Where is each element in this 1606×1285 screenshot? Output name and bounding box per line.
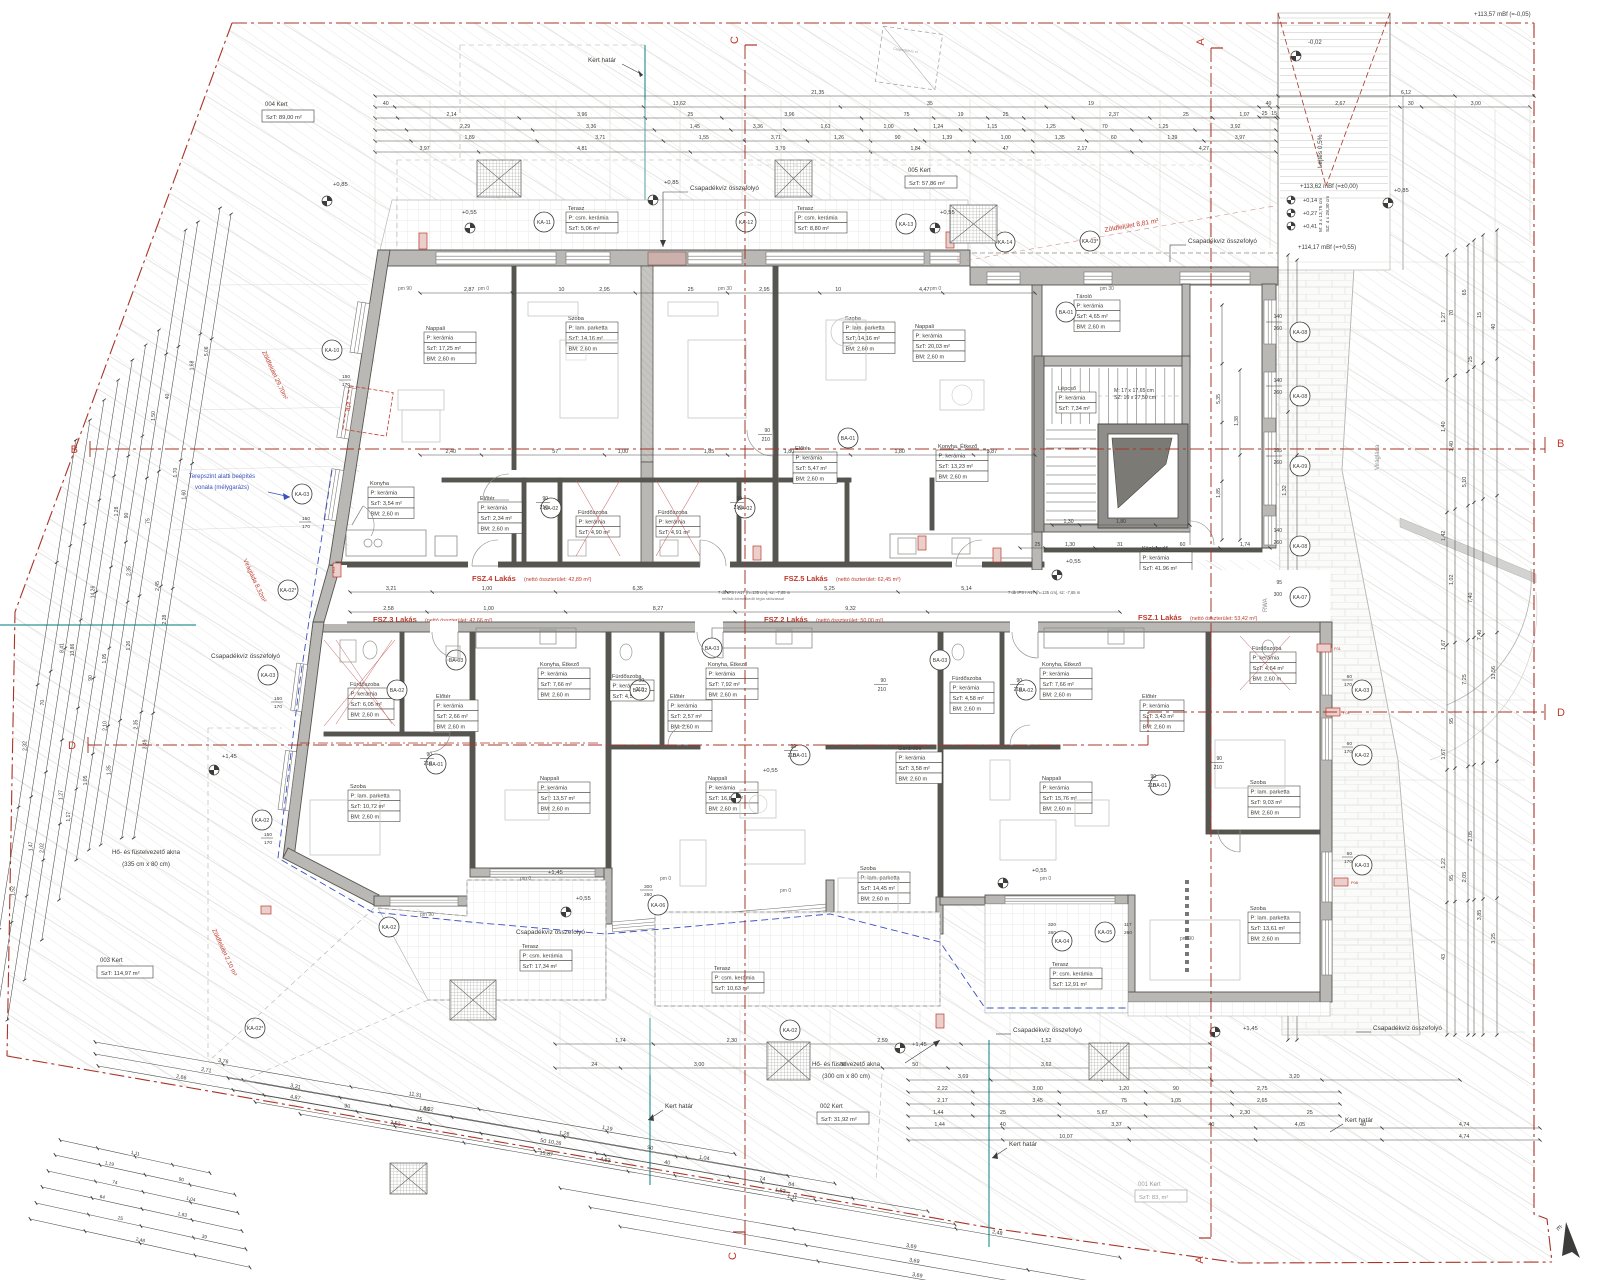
svg-text:4,81: 4,81 (577, 146, 587, 152)
svg-text:P: csm. kerámia: P: csm. kerámia (1053, 972, 1094, 978)
svg-text:SzT: 3,43 m²: SzT: 3,43 m² (1143, 714, 1175, 720)
svg-text:SzT: 5,47 m²: SzT: 5,47 m² (796, 466, 828, 472)
svg-text:1,00: 1,00 (1001, 135, 1011, 141)
svg-text:21,35: 21,35 (811, 90, 824, 96)
svg-text:Kert határ: Kert határ (1009, 1141, 1038, 1148)
svg-text:320: 320 (1048, 922, 1056, 928)
svg-text:1,25: 1,25 (1046, 124, 1056, 130)
svg-text:BM: 2,60 m: BM: 2,60 m (541, 807, 570, 813)
svg-text:2,02: 2,02 (39, 843, 45, 853)
svg-text:Fürdőszoba: Fürdőszoba (952, 676, 982, 682)
svg-text:43: 43 (1441, 954, 1447, 960)
svg-text:75: 75 (904, 112, 910, 118)
svg-text:50: 50 (540, 1138, 547, 1145)
svg-text:1,44: 1,44 (934, 1122, 945, 1128)
svg-text:90: 90 (1016, 678, 1022, 684)
svg-text:Terasz: Terasz (568, 206, 585, 212)
svg-text:SzT: 2,34 m²: SzT: 2,34 m² (481, 516, 513, 522)
svg-text:4,47: 4,47 (919, 287, 930, 293)
svg-text:KA-02: KA-02 (382, 925, 397, 931)
svg-text:Előtér: Előtér (480, 496, 495, 502)
svg-text:+0,85: +0,85 (1394, 188, 1409, 194)
svg-text:SzT: 10,63 m²: SzT: 10,63 m² (715, 986, 750, 992)
svg-text:1,26: 1,26 (834, 135, 844, 141)
svg-text:1,39: 1,39 (942, 135, 952, 141)
svg-text:5,10: 5,10 (1462, 477, 1468, 488)
svg-text:25: 25 (416, 1116, 423, 1123)
svg-text:KA-10: KA-10 (325, 348, 340, 354)
svg-text:1,61: 1,61 (820, 124, 830, 130)
svg-text:1,24: 1,24 (933, 124, 943, 130)
svg-text:KA-06: KA-06 (651, 903, 666, 909)
svg-text:25: 25 (1262, 111, 1268, 117)
svg-text:SzT: 13,23 m²: SzT: 13,23 m² (939, 464, 974, 470)
svg-text:pm 30: pm 30 (718, 286, 732, 292)
svg-text:Kert határ: Kert határ (588, 57, 617, 64)
svg-text:P: kerámia: P: kerámia (953, 686, 981, 692)
svg-text:+0,27: +0,27 (1303, 211, 1317, 217)
svg-text:Kert határ: Kert határ (665, 1103, 694, 1110)
svg-text:KA-02: KA-02 (783, 1028, 798, 1034)
svg-text:P: lam. parketta: P: lam. parketta (861, 876, 901, 882)
svg-text:210: 210 (540, 505, 549, 511)
svg-text:+113,57 mBf (=-0,05): +113,57 mBf (=-0,05) (1474, 12, 1531, 18)
svg-text:2,37: 2,37 (1109, 112, 1119, 118)
svg-text:1,67: 1,67 (1441, 749, 1447, 760)
svg-text:Fürdőszoba: Fürdőszoba (658, 510, 688, 516)
svg-text:2,40: 2,40 (446, 449, 457, 455)
svg-text:F08: F08 (1351, 880, 1359, 885)
svg-text:2,67: 2,67 (1335, 101, 1345, 107)
svg-text:Előtér: Előtér (1142, 694, 1157, 700)
svg-text:+1,45: +1,45 (912, 1042, 927, 1048)
svg-text:1,27: 1,27 (1441, 312, 1447, 323)
svg-text:Nappali: Nappali (708, 776, 727, 782)
svg-text:70: 70 (40, 700, 46, 706)
svg-text:2,05: 2,05 (1468, 831, 1474, 842)
svg-text:15: 15 (1477, 312, 1483, 318)
svg-text:300: 300 (644, 884, 652, 890)
svg-text:SzT: 7,34 m²: SzT: 7,34 m² (1059, 406, 1091, 412)
svg-text:tetősik kiemelkedő tégla ráfáz: tetősik kiemelkedő tégla ráfázással (722, 596, 784, 601)
svg-text:Szoba: Szoba (1250, 780, 1267, 786)
svg-text:BM: 2,60 m: BM: 2,60 m (953, 707, 982, 713)
svg-text:P: csm. kerámia: P: csm. kerámia (569, 216, 610, 222)
svg-text:SZ: 16 x 27,50 cm: SZ: 16 x 27,50 cm (1114, 395, 1156, 401)
svg-text:Terepszint alatti beépítés: Terepszint alatti beépítés (189, 474, 255, 480)
svg-text:90: 90 (426, 752, 432, 758)
svg-text:1,07: 1,07 (1239, 112, 1249, 118)
svg-text:2,14: 2,14 (447, 112, 457, 118)
svg-text:BM: 2,60 m: BM: 2,60 m (1143, 725, 1172, 731)
svg-text:KA-08: KA-08 (1293, 544, 1308, 550)
svg-text:300: 300 (1274, 592, 1283, 598)
svg-text:1,00: 1,00 (482, 586, 493, 592)
svg-text:P: lam. parketta: P: lam. parketta (1251, 790, 1291, 796)
svg-text:210: 210 (1214, 765, 1223, 771)
svg-text:90: 90 (88, 675, 94, 681)
svg-text:BM: 2,60 m: BM: 2,60 m (1253, 677, 1282, 683)
svg-text:170: 170 (302, 524, 310, 530)
svg-text:pm 0: pm 0 (520, 876, 531, 882)
svg-text:6,35: 6,35 (632, 586, 643, 592)
svg-text:Konyha: Konyha (370, 481, 390, 487)
svg-text:150: 150 (342, 374, 350, 380)
svg-text:BA-03: BA-03 (705, 646, 720, 652)
svg-text:SzT: 83, m²: SzT: 83, m² (1139, 1195, 1168, 1201)
svg-text:BM: 2,60 m: BM: 2,60 m (351, 815, 380, 821)
svg-text:Terasz: Terasz (1052, 962, 1069, 968)
svg-text:3,00: 3,00 (1471, 101, 1481, 107)
svg-text:A: A (1195, 38, 1207, 46)
svg-text:95: 95 (1449, 875, 1455, 881)
svg-text:31: 31 (1117, 542, 1123, 548)
svg-text:P: kerámia: P: kerámia (1143, 556, 1171, 562)
svg-text:Előtér: Előtér (436, 694, 451, 700)
svg-text:Konyha, Étkező: Konyha, Étkező (1042, 661, 1081, 668)
svg-text:10: 10 (835, 287, 841, 293)
svg-text:Szoba: Szoba (1250, 906, 1267, 912)
svg-text:1,00: 1,00 (884, 124, 894, 130)
svg-text:1,80: 1,80 (1116, 519, 1126, 525)
svg-text:pm 0: pm 0 (930, 286, 941, 292)
svg-text:1,85: 1,85 (1216, 488, 1222, 498)
svg-text:170: 170 (1344, 749, 1352, 755)
svg-text:3,37: 3,37 (1111, 1122, 1122, 1128)
svg-text:1,97: 1,97 (0, 980, 2, 990)
svg-text:SzT: 14,45 m²: SzT: 14,45 m² (861, 886, 896, 892)
svg-text:2,30: 2,30 (727, 1038, 738, 1044)
svg-text:P: kerámia: P: kerámia (709, 672, 737, 678)
svg-text:P: csm. kerámia: P: csm. kerámia (523, 954, 564, 960)
svg-text:001 Kert: 001 Kert (1138, 1182, 1161, 1188)
svg-text:150: 150 (302, 516, 310, 522)
svg-text:1,45: 1,45 (690, 124, 700, 130)
svg-text:Terasz: Terasz (714, 966, 731, 972)
svg-text:pm 90: pm 90 (398, 286, 412, 292)
svg-text:KA-03: KA-03 (1355, 863, 1370, 869)
svg-text:4,05: 4,05 (1295, 1122, 1306, 1128)
svg-text:90: 90 (1173, 1086, 1179, 1092)
svg-text:BM: 2,60 m: BM: 2,60 m (371, 512, 400, 518)
svg-text:15: 15 (1271, 111, 1277, 117)
svg-text:60: 60 (1347, 851, 1353, 857)
svg-text:Kert határ: Kert határ (1345, 1117, 1374, 1124)
svg-text:4,74: 4,74 (1459, 1122, 1470, 1128)
svg-text:Lépcső: Lépcső (1058, 386, 1076, 392)
svg-text:+0,55: +0,55 (576, 896, 591, 902)
svg-text:005 Kert: 005 Kert (908, 168, 931, 174)
svg-text:14,26: 14,26 (90, 586, 96, 599)
svg-text:KA-08: KA-08 (1293, 394, 1308, 400)
svg-text:2,32: 2,32 (22, 741, 28, 751)
svg-text:2,35: 2,35 (134, 720, 140, 730)
svg-text:Konyha, Étkező: Konyha, Étkező (540, 661, 579, 668)
svg-text:Fürdőszoba: Fürdőszoba (578, 510, 608, 516)
svg-text:SzT: 15,76 m²: SzT: 15,76 m² (1043, 796, 1078, 802)
svg-text:SzT: 2,66 m²: SzT: 2,66 m² (437, 714, 469, 720)
svg-text:KA-05: KA-05 (1098, 930, 1113, 936)
svg-text:(nettó összterület: 53,42 m²): (nettó összterület: 53,42 m²) (1190, 616, 1258, 622)
svg-text:3,00: 3,00 (1032, 1086, 1043, 1092)
svg-text:4,74: 4,74 (1459, 1134, 1470, 1140)
svg-text:25: 25 (1307, 1110, 1313, 1116)
svg-text:260: 260 (1274, 540, 1283, 546)
svg-text:BA-03: BA-03 (933, 658, 948, 664)
svg-text:P: kerámia: P: kerámia (1043, 672, 1071, 678)
svg-text:1,74: 1,74 (615, 1038, 626, 1044)
svg-text:260: 260 (1274, 326, 1283, 332)
svg-text:2,22: 2,22 (937, 1086, 948, 1092)
svg-text:BM: 2,60 m: BM: 2,60 m (899, 777, 928, 783)
svg-text:(nettó öszterület: 62,45 m²): (nettó öszterület: 62,45 m²) (836, 577, 901, 583)
svg-text:2,59: 2,59 (877, 1038, 888, 1044)
svg-text:1,22: 1,22 (1441, 858, 1447, 869)
svg-text:KA-03: KA-03 (261, 673, 276, 679)
svg-text:2,10: 2,10 (102, 721, 108, 731)
svg-text:Szoba: Szoba (350, 784, 367, 790)
svg-text:3,87: 3,87 (987, 449, 998, 455)
svg-text:Nappali: Nappali (426, 326, 445, 332)
svg-text:3,49: 3,49 (143, 739, 149, 749)
svg-text:Csapadékvíz összefolyó: Csapadékvíz összefolyó (516, 929, 585, 936)
svg-text:19: 19 (1088, 101, 1094, 107)
svg-text:P: kerámia: P: kerámia (1043, 786, 1071, 792)
svg-text:Fürdőszoba: Fürdőszoba (350, 682, 380, 688)
svg-text:60: 60 (1111, 135, 1117, 141)
svg-text:210: 210 (636, 687, 645, 693)
svg-text:1,55: 1,55 (699, 135, 709, 141)
svg-text:3,45: 3,45 (1032, 1098, 1043, 1104)
svg-text:BM: 2,60 m: BM: 2,60 m (427, 357, 456, 363)
svg-text:25: 25 (1000, 1110, 1006, 1116)
svg-text:7,40: 7,40 (1468, 593, 1474, 604)
svg-text:170: 170 (274, 704, 282, 710)
svg-text:3,69: 3,69 (958, 1074, 969, 1080)
svg-text:3,36: 3,36 (753, 124, 763, 130)
svg-text:70: 70 (1102, 124, 1108, 130)
svg-text:3,96: 3,96 (784, 112, 794, 118)
svg-text:003 Kert: 003 Kert (100, 958, 123, 964)
svg-text:+0,55: +0,55 (1066, 559, 1081, 565)
svg-text:3,79: 3,79 (775, 146, 785, 152)
svg-text:1,20: 1,20 (1119, 1086, 1130, 1092)
svg-text:10,07: 10,07 (1059, 1134, 1073, 1140)
svg-text:SzT: 8,80 m²: SzT: 8,80 m² (798, 226, 830, 232)
svg-text:+114,17 mBf (=+0,55): +114,17 mBf (=+0,55) (1298, 245, 1356, 251)
svg-text:P: kerámia: P: kerámia (709, 786, 737, 792)
svg-text:1,26: 1,26 (126, 641, 132, 651)
svg-text:SzT: 9,03 m²: SzT: 9,03 m² (1251, 800, 1283, 806)
svg-text:(300 cm x 80 cm): (300 cm x 80 cm) (822, 1073, 870, 1080)
svg-text:3,97: 3,97 (420, 146, 430, 152)
svg-text:C: C (729, 36, 741, 44)
svg-text:13,86: 13,86 (70, 644, 76, 657)
svg-text:7 db IPS I A17 (h=135 cm), sz:: 7 db IPS I A17 (h=135 cm), sz: -7,65 m (718, 590, 791, 595)
svg-text:90: 90 (1150, 774, 1156, 780)
svg-text:4,27: 4,27 (1199, 146, 1209, 152)
svg-text:9,32: 9,32 (845, 606, 856, 612)
svg-text:Hő- és füstelvezető akna: Hő- és füstelvezető akna (812, 1061, 881, 1068)
svg-text:SzT: 4,58 m²: SzT: 4,58 m² (953, 696, 985, 702)
svg-text:90: 90 (880, 678, 886, 684)
svg-text:P: kerámia: P: kerámia (939, 454, 967, 460)
svg-text:3,62: 3,62 (1041, 1062, 1052, 1068)
svg-text:40: 40 (165, 393, 171, 399)
svg-text:BM: 2,60 m: BM: 2,60 m (916, 355, 945, 361)
svg-text:1,52: 1,52 (1041, 1038, 1052, 1044)
svg-text:3,71: 3,71 (771, 135, 781, 141)
svg-text:1,52: 1,52 (11, 886, 17, 896)
svg-text:SzT: 13,57 m²: SzT: 13,57 m² (541, 796, 576, 802)
svg-text:pm 0: pm 0 (1040, 876, 1051, 882)
svg-text:210: 210 (1014, 687, 1023, 693)
svg-text:+0,55: +0,55 (763, 768, 778, 774)
svg-text:117: 117 (1124, 922, 1132, 928)
svg-text:KA-04: KA-04 (1055, 939, 1070, 945)
svg-text:2,45: 2,45 (155, 581, 161, 591)
svg-text:BM: 2,60 m: BM: 2,60 m (1251, 811, 1280, 817)
svg-text:Közlekedő: Közlekedő (1142, 546, 1168, 552)
svg-text:1,30: 1,30 (1064, 519, 1074, 525)
svg-text:P: kerámia: P: kerámia (541, 672, 569, 678)
svg-text:5,06: 5,06 (204, 346, 210, 356)
svg-text:P: kerámia: P: kerámia (481, 506, 509, 512)
svg-text:95: 95 (1449, 718, 1455, 724)
svg-text:1,05: 1,05 (83, 775, 89, 785)
svg-text:7,40: 7,40 (1477, 630, 1483, 641)
svg-text:57: 57 (552, 449, 558, 455)
svg-text:RWA: RWA (1263, 598, 1269, 612)
svg-text:P: kerámia: P: kerámia (1143, 704, 1171, 710)
svg-text:KA-02: KA-02 (255, 818, 270, 824)
svg-text:90: 90 (647, 1145, 654, 1152)
svg-text:10: 10 (558, 287, 564, 293)
svg-text:BM: 2,60 m: BM: 2,60 m (939, 475, 968, 481)
svg-text:P: csm. kerámia: P: csm. kerámia (715, 976, 756, 982)
svg-text:C: C (727, 1252, 739, 1260)
svg-text:pm 90: pm 90 (1180, 936, 1194, 942)
svg-text:13,56: 13,56 (1491, 666, 1497, 680)
svg-text:FSZ.1 Lakás: FSZ.1 Lakás (1138, 613, 1182, 622)
svg-text:90: 90 (638, 678, 644, 684)
svg-text:8,27: 8,27 (653, 606, 664, 612)
svg-text:50: 50 (912, 1062, 918, 1068)
svg-text:FSZ.5 Lakás: FSZ.5 Lakás (784, 574, 828, 583)
svg-text:3,71: 3,71 (595, 135, 605, 141)
svg-text:Virágláda: Virágláda (1375, 444, 1381, 470)
svg-text:BA-01: BA-01 (841, 436, 856, 442)
svg-text:002 Kert: 002 Kert (820, 1104, 843, 1110)
svg-text:74: 74 (759, 1176, 766, 1183)
svg-text:25: 25 (688, 287, 694, 293)
svg-text:40: 40 (1491, 324, 1497, 330)
svg-text:70: 70 (1449, 310, 1455, 316)
svg-text:2,05: 2,05 (1462, 872, 1468, 883)
svg-text:210: 210 (878, 687, 887, 693)
svg-text:KA-13: KA-13 (899, 222, 914, 228)
svg-text:BA-03: BA-03 (449, 658, 464, 664)
svg-text:F01: F01 (1334, 646, 1342, 651)
svg-text:6,12: 6,12 (1401, 90, 1411, 96)
svg-text:BM: 2,60 m: BM: 2,60 m (846, 347, 875, 353)
svg-text:Szoba: Szoba (568, 316, 585, 322)
svg-text:3,25: 3,25 (1491, 933, 1497, 944)
svg-text:170: 170 (264, 840, 272, 846)
svg-text:B: B (1557, 438, 1564, 450)
svg-text:P: lam. parketta: P: lam. parketta (569, 326, 609, 332)
svg-text:P: lam. parketta: P: lam. parketta (351, 794, 391, 800)
svg-text:150: 150 (264, 832, 272, 838)
svg-text:260: 260 (1274, 460, 1283, 466)
svg-text:3,85: 3,85 (1477, 910, 1483, 921)
svg-text:+1,45: +1,45 (548, 870, 563, 876)
svg-text:P: kerámia: P: kerámia (1253, 656, 1281, 662)
svg-text:P: kerámia: P: kerámia (427, 336, 455, 342)
svg-text:7 db IPS I A17 (h=135 cm), sz:: 7 db IPS I A17 (h=135 cm), sz: -7,65 m (1008, 590, 1081, 595)
svg-text:M: 3 x 13,75 cm: M: 3 x 13,75 cm (1318, 198, 1324, 232)
svg-text:Nappali: Nappali (1042, 776, 1061, 782)
svg-text:BM: 2,60 m: BM: 2,60 m (1077, 325, 1106, 331)
svg-text:Nappali: Nappali (915, 324, 934, 330)
svg-text:90: 90 (1216, 756, 1222, 762)
svg-text:KA-11: KA-11 (537, 220, 551, 226)
svg-text:2,58: 2,58 (383, 606, 394, 612)
svg-text:25: 25 (687, 112, 693, 118)
svg-text:2,75: 2,75 (1257, 1086, 1268, 1092)
svg-text:BM: 2,60 m: BM: 2,60 m (796, 477, 825, 483)
svg-text:(335 cm x 80 cm): (335 cm x 80 cm) (122, 861, 170, 868)
svg-text:D: D (1557, 707, 1565, 719)
svg-text:F03: F03 (332, 567, 336, 573)
svg-text:260: 260 (1124, 930, 1132, 936)
svg-text:170: 170 (1344, 859, 1352, 865)
svg-text:2,95: 2,95 (759, 287, 770, 293)
svg-text:1,15: 1,15 (987, 124, 997, 130)
svg-text:SzT: 89,00 m²: SzT: 89,00 m² (266, 115, 302, 121)
svg-text:BM: 2,60 m: BM: 2,60 m (1251, 937, 1280, 943)
svg-text:1,42: 1,42 (1441, 531, 1447, 542)
svg-text:P: kerámia: P: kerámia (1059, 396, 1087, 402)
svg-text:1,85: 1,85 (704, 449, 715, 455)
svg-text:Csapadékvíz összefolyó: Csapadékvíz összefolyó (1013, 1027, 1082, 1034)
svg-text:19: 19 (958, 112, 964, 118)
svg-text:1,40: 1,40 (1449, 441, 1455, 452)
svg-text:vonala (mélygarázs): vonala (mélygarázs) (195, 485, 249, 491)
svg-text:SzT: 114,97 m²: SzT: 114,97 m² (101, 971, 140, 977)
svg-text:64: 64 (788, 1181, 795, 1188)
svg-text:150: 150 (274, 696, 282, 702)
svg-text:SzT: 17,25 m²: SzT: 17,25 m² (427, 346, 462, 352)
svg-text:SzT: 6,05 m²: SzT: 6,05 m² (351, 702, 383, 708)
svg-text:BA-01: BA-01 (1059, 310, 1074, 316)
svg-text:SzT: 12,91 m²: SzT: 12,91 m² (1053, 982, 1088, 988)
svg-text:pm 0: pm 0 (478, 286, 489, 292)
svg-text:+0,85: +0,85 (664, 180, 679, 186)
svg-text:5,14: 5,14 (961, 586, 972, 592)
svg-text:BM: 2,60 m: BM: 2,60 m (481, 527, 510, 533)
svg-text:1,39: 1,39 (1167, 135, 1177, 141)
svg-text:210: 210 (1148, 783, 1157, 789)
svg-text:2,29: 2,29 (460, 124, 470, 130)
svg-text:FSZ.4 Lakás: FSZ.4 Lakás (472, 574, 516, 583)
svg-text:1,80: 1,80 (894, 449, 905, 455)
svg-text:+0,55: +0,55 (462, 210, 477, 216)
svg-text:-0,02: -0,02 (1308, 40, 1322, 46)
svg-text:P: kerámia: P: kerámia (916, 334, 944, 340)
svg-text:140: 140 (1274, 378, 1283, 384)
svg-text:Csapadékvíz összefolyó: Csapadékvíz összefolyó (1188, 238, 1257, 245)
